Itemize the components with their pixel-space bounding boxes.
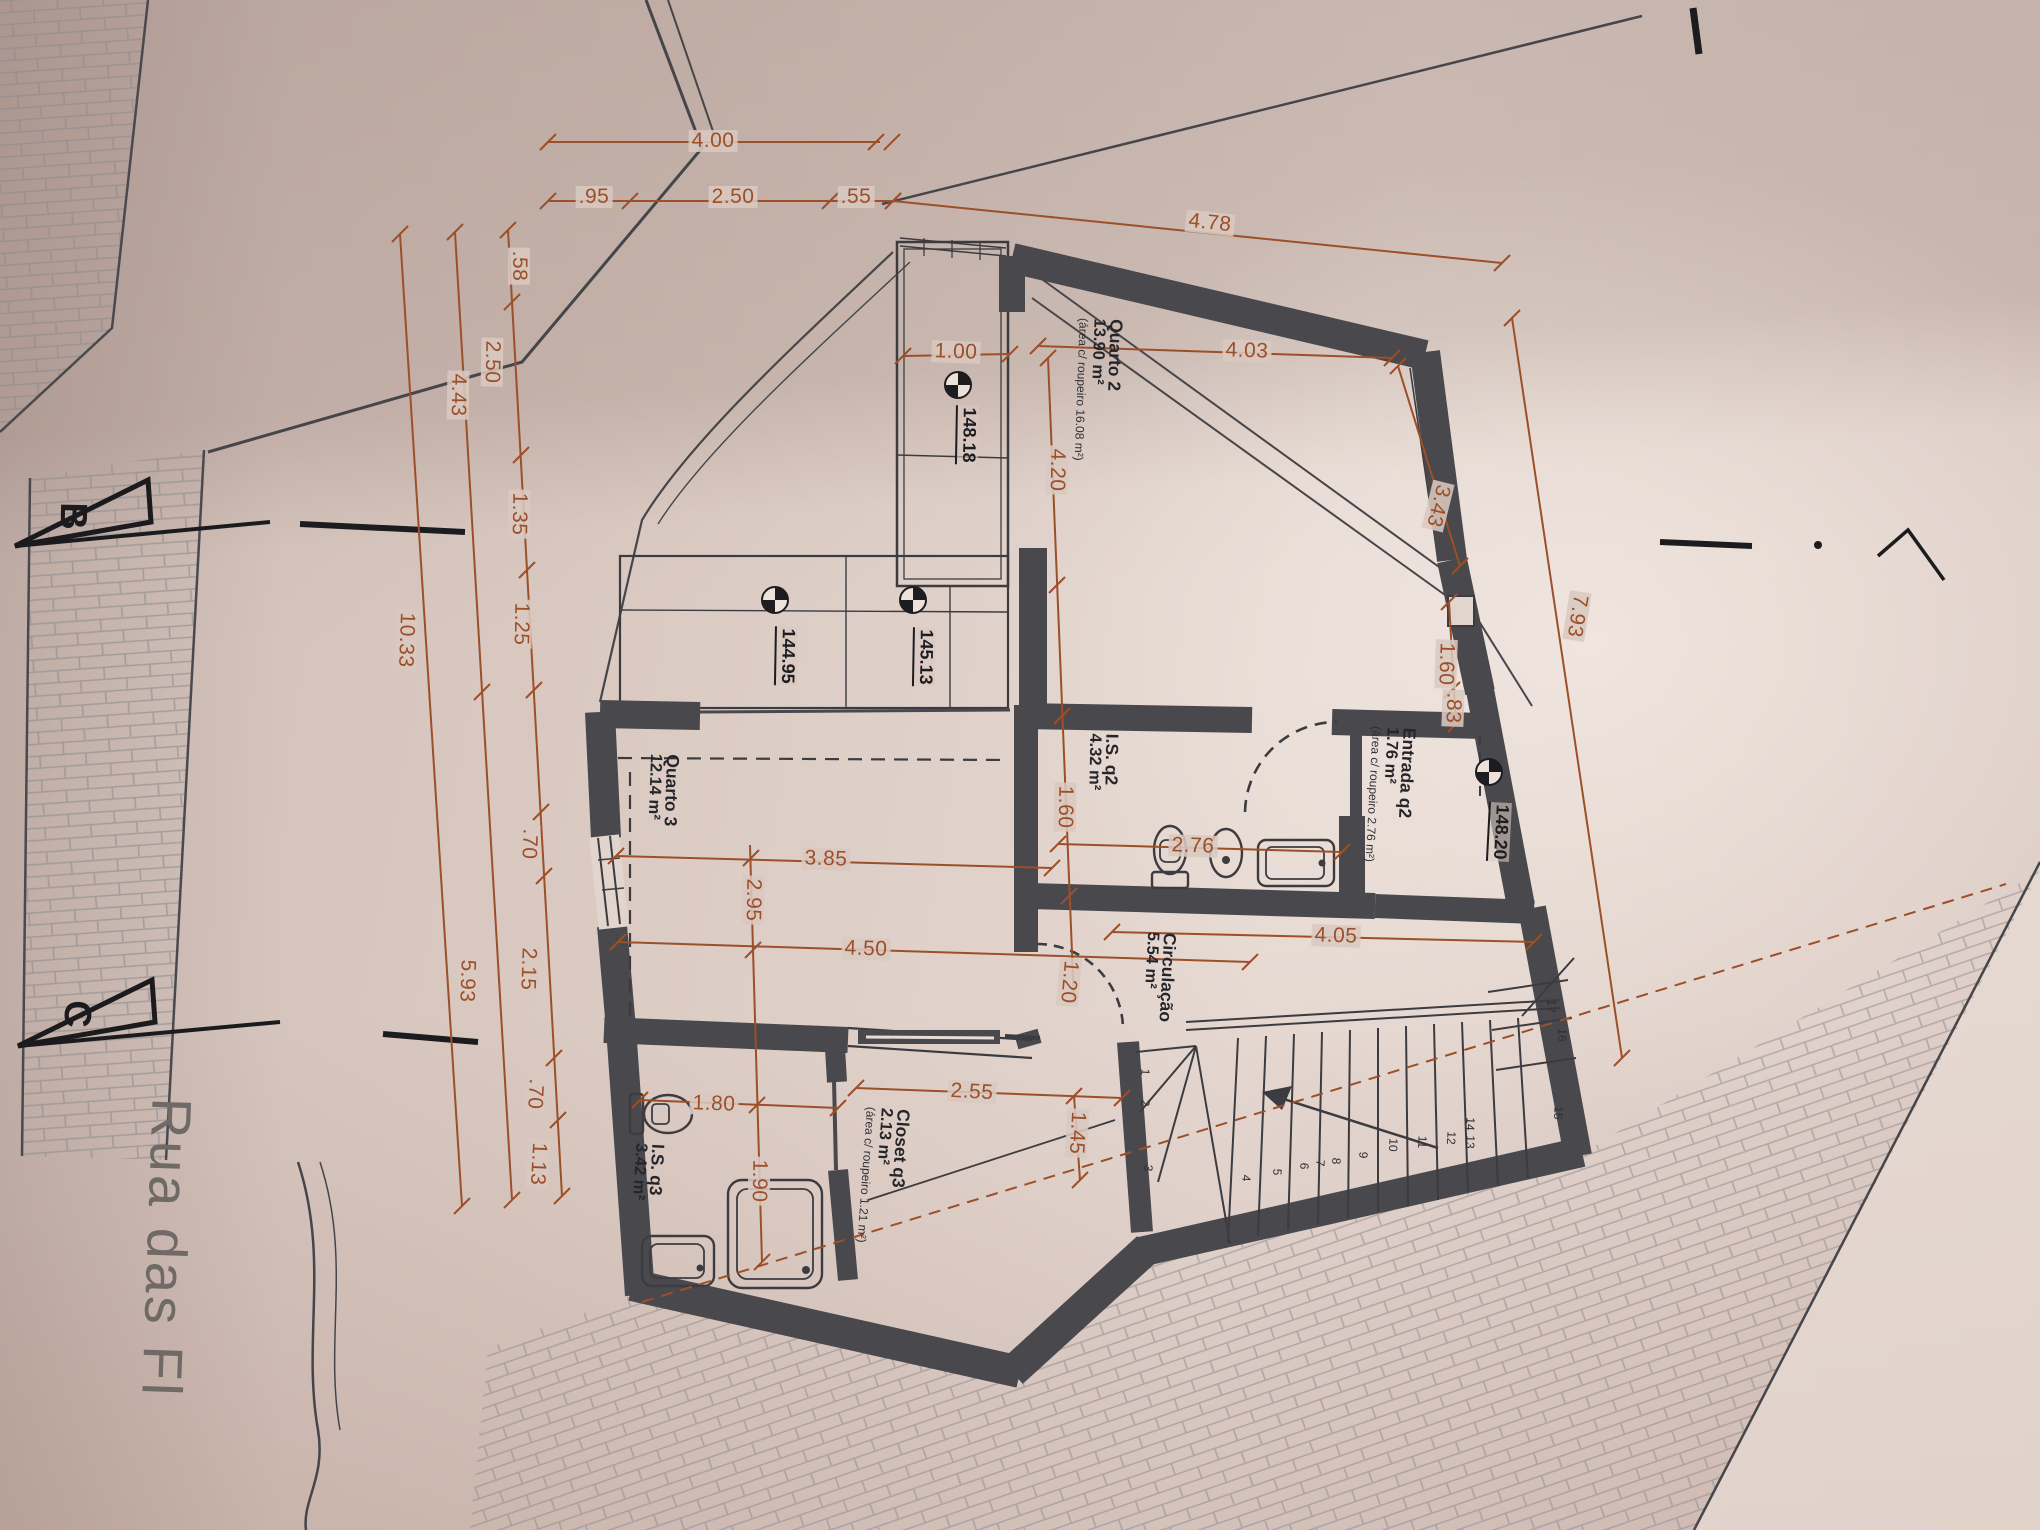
- dim-label: 1.13: [526, 1139, 551, 1189]
- dim-label: 2.50: [709, 186, 758, 208]
- stair-step-number: 17: [1544, 999, 1557, 1013]
- dim-label: .55: [838, 186, 875, 208]
- elevation-label: 148.18: [955, 405, 979, 464]
- stair-step-number: 1: [1139, 1068, 1152, 1075]
- dim-label: .58: [508, 248, 530, 285]
- level-marker-icon: [900, 587, 926, 613]
- pocket-door: [848, 1028, 1040, 1058]
- room-label-entrada-q2: Entrada q2 1.76 m² (área c/ roupeiro 2.7…: [1363, 726, 1418, 864]
- room-label-quarto3: Quarto 3 12.14 m²: [644, 753, 682, 826]
- room-area: 4.32 m²: [1085, 733, 1103, 790]
- stair-step-number: 7: [1314, 1159, 1327, 1166]
- dim-label: 2.15: [516, 944, 540, 994]
- elevation-label: 144.95: [774, 626, 798, 685]
- dim-label: 10.33: [394, 609, 418, 671]
- dim-label: 4.03: [1222, 339, 1272, 363]
- stair-step-number: 2: [1139, 1099, 1152, 1106]
- dim-label: 1.60: [1054, 782, 1077, 831]
- room-label-closet-q3: Closet q3 2.13 m² (área c/ roupeiro 1.21…: [855, 1106, 913, 1245]
- door-swing-is-q2: [1245, 722, 1337, 812]
- level-marker-icon: [1476, 759, 1502, 785]
- dim-label: .70: [523, 1075, 547, 1113]
- hatch-left-street: [22, 450, 204, 1160]
- dim-label: 1.90: [748, 1156, 771, 1205]
- stair-step-number: 12: [1444, 1131, 1457, 1145]
- room-label-is-q3: I.S. q3 3.42 m²: [629, 1143, 668, 1202]
- dim-label: 1.60: [1434, 639, 1458, 689]
- stair-step-number: 3: [1142, 1164, 1155, 1171]
- room-area: 12.14 m²: [644, 753, 664, 826]
- dim-label: 4.43: [447, 370, 470, 419]
- level-marker-icon: [762, 587, 788, 613]
- room-label-is-q2: I.S. q2 4.32 m²: [1085, 733, 1122, 790]
- room-name: I.S. q2: [1102, 734, 1121, 791]
- dim-label: 4.00: [689, 130, 738, 152]
- dim-label: .83: [1441, 689, 1464, 726]
- room-area: 3.42 m²: [629, 1143, 649, 1201]
- level-marker-icon: [945, 372, 971, 398]
- window-quarto3: [598, 836, 624, 928]
- dim-label: 1.20: [1056, 957, 1082, 1008]
- section-marker-b: B: [52, 502, 92, 530]
- room-label-circulacao: Circulação 5.54 m²: [1139, 931, 1179, 1022]
- stair-step-number: 11: [1415, 1135, 1428, 1148]
- dim-label: 5.93: [455, 956, 479, 1006]
- stair-step-number: 9: [1357, 1151, 1370, 1158]
- section-marker-c: C: [56, 1000, 96, 1028]
- dim-label: 2.50: [481, 337, 504, 386]
- dim-label: 4.05: [1311, 924, 1361, 948]
- elevation-label: 145.13: [912, 627, 936, 686]
- street-name: Rua das Fl: [131, 1097, 200, 1400]
- stair-step-number: 10: [1386, 1138, 1399, 1152]
- dim-label: 4.20: [1046, 445, 1069, 494]
- room-label-quarto2: Quarto 2 13.90 m² (área c/ roupeiro 16.0…: [1072, 318, 1125, 462]
- dim-label: .70: [517, 825, 540, 862]
- stair-step-number: 14: [1463, 1117, 1476, 1131]
- dim-label: 1.80: [689, 1092, 739, 1116]
- dim-label: 3.85: [801, 847, 851, 871]
- stair-step-number: 15: [1551, 1106, 1564, 1120]
- hatch-topleft-wedge: [0, 0, 148, 432]
- dim-label: 1.35: [508, 489, 531, 538]
- stair-step-number: 8: [1330, 1157, 1343, 1164]
- dim-label: .95: [576, 186, 613, 208]
- photographed-floor-plan: 4.00 .95 2.50 .55 4.78 .58 2.50 4.43 10.…: [0, 0, 2040, 1530]
- dim-label: 1.00: [931, 340, 981, 364]
- elevation-label: 148.20: [1486, 802, 1512, 862]
- dim-label: 2.76: [1168, 834, 1218, 858]
- dim-label: 1.25: [510, 599, 533, 648]
- dim-label: 2.55: [947, 1080, 997, 1105]
- dim-label: 4.50: [841, 937, 891, 961]
- stair-step-number: 5: [1271, 1168, 1284, 1175]
- stair-step-number: 13: [1463, 1135, 1476, 1149]
- stair-step-number: 6: [1298, 1162, 1311, 1169]
- stair-step-number: 16: [1555, 1028, 1568, 1042]
- stair-step-number: 4: [1240, 1174, 1253, 1181]
- floor-plan-drawing: [0, 0, 2040, 1530]
- dim-label: 2.95: [742, 875, 765, 924]
- dim-label: 1.45: [1065, 1108, 1090, 1158]
